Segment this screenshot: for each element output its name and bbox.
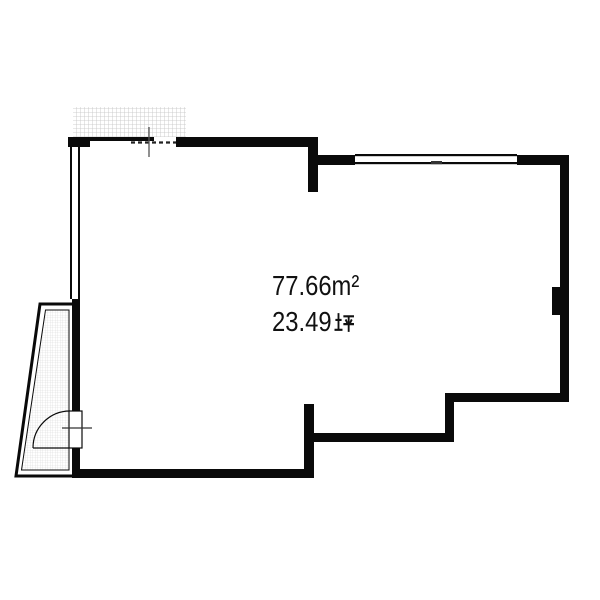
wall-bottom-stub — [304, 404, 314, 478]
sliding-door-panel — [88, 137, 154, 141]
floorplan: 77.66m² 23.49 — [0, 0, 600, 600]
window-left-wall — [70, 147, 80, 299]
area-tsubo-value: 23.49 — [272, 306, 332, 337]
area-labels: 77.66m² 23.49 — [272, 268, 359, 340]
pillar-right-wall — [552, 287, 567, 315]
window-top-right-outer-line — [355, 154, 517, 156]
entrance-porch — [16, 304, 74, 476]
area-tsubo-label: 23.49 — [272, 304, 359, 340]
wall-bottom — [72, 469, 314, 478]
wall-right — [560, 155, 569, 402]
window-left-outer-line — [70, 147, 72, 299]
wall-bottom-right — [445, 393, 569, 402]
wall-top-left-corner — [68, 137, 90, 147]
tsubo-unit-glyph — [333, 309, 355, 334]
area-m2-label: 77.66m² — [272, 268, 359, 304]
window-left-inner-line — [78, 147, 80, 299]
window-top-right-center-tick — [431, 161, 442, 164]
window-top-right — [355, 154, 517, 164]
wall-upper-right-left — [313, 155, 355, 165]
wall-top — [176, 137, 318, 147]
wall-bottom-middle — [309, 433, 454, 442]
wall-porch-upper — [72, 299, 80, 411]
balcony-hatched-area — [73, 107, 186, 137]
wall-porch-lower — [72, 448, 80, 478]
door-leaf — [69, 411, 82, 448]
